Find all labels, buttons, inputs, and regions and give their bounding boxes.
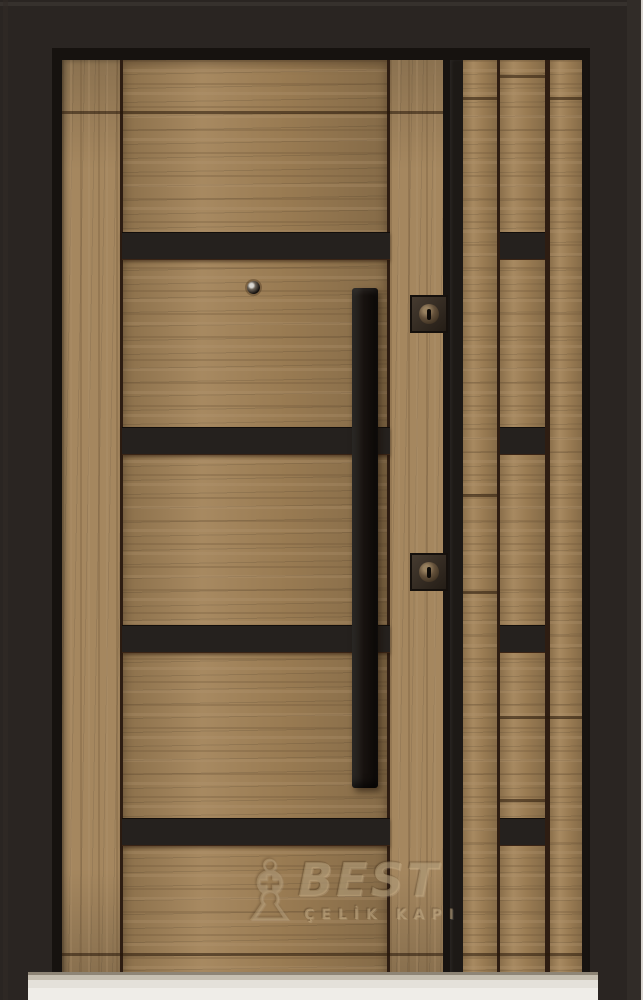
sidelite-groove bbox=[500, 716, 582, 719]
sidelite-groove bbox=[550, 97, 582, 100]
sidelite-accent-block bbox=[500, 427, 545, 455]
sidelite-groove bbox=[463, 591, 497, 594]
door-product-photo: ♗ BEST ÇELİK KAPI bbox=[0, 0, 643, 1000]
lower-keyhole bbox=[427, 567, 431, 578]
sidelite-accent-block bbox=[500, 818, 545, 846]
peephole bbox=[247, 281, 260, 294]
sidelite-vertical-accent-stripe bbox=[450, 60, 463, 978]
sidelite-groove bbox=[500, 799, 545, 802]
sidelite-groove bbox=[463, 494, 497, 497]
leaf-left-stile bbox=[62, 60, 120, 978]
door-frame-right-edge bbox=[627, 0, 641, 1000]
leaf-accent-stripe bbox=[122, 625, 390, 653]
door-handle-bar bbox=[352, 288, 378, 788]
sidelite-accent-block bbox=[500, 625, 545, 653]
leaf-top-rail-groove bbox=[62, 111, 443, 114]
door-leaf bbox=[62, 60, 450, 978]
sidelite-column-right bbox=[550, 60, 582, 978]
leaf-accent-stripe bbox=[122, 232, 390, 260]
sidelite-panel bbox=[463, 60, 582, 978]
sidelite-groove bbox=[500, 75, 545, 78]
sidelite-groove bbox=[463, 97, 497, 100]
door-frame-left-edge bbox=[3, 0, 8, 1000]
lower-lock-escutcheon bbox=[410, 553, 448, 591]
threshold-sill bbox=[28, 972, 598, 1000]
door-frame-top-highlight bbox=[0, 2, 643, 6]
upper-keyhole bbox=[427, 309, 431, 320]
upper-lock-cylinder bbox=[419, 304, 439, 324]
leaf-accent-stripe bbox=[122, 818, 390, 846]
leaf-accent-stripe bbox=[122, 427, 390, 455]
sidelite-right-seam bbox=[582, 60, 588, 978]
sidelite-accent-block bbox=[500, 232, 545, 260]
lower-lock-cylinder bbox=[419, 562, 439, 582]
sidelite-column-left bbox=[463, 60, 497, 978]
upper-lock-escutcheon bbox=[410, 295, 448, 333]
leaf-edge-seam bbox=[443, 60, 450, 978]
sidelite-bottom-groove bbox=[463, 953, 582, 956]
leaf-lock-stile bbox=[390, 60, 443, 978]
leaf-bottom-rail-groove bbox=[62, 953, 443, 956]
